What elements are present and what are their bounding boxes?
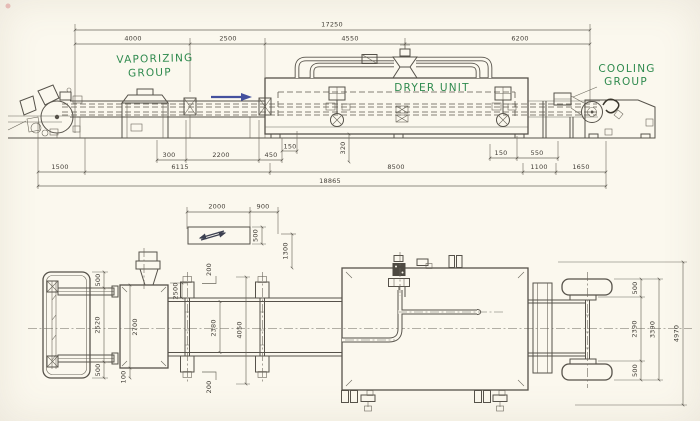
- dim-300: 300: [162, 151, 175, 159]
- scan-smudge: [6, 4, 11, 9]
- roller-2: [256, 272, 270, 382]
- dryer-unit-plan: [342, 252, 529, 411]
- cooling-group-label-line2: GROUP: [604, 76, 648, 88]
- dim-2200: 2200: [212, 151, 229, 159]
- plan-view: 2000 900 500 1300: [28, 203, 692, 412]
- dim-150-right: 150: [494, 149, 507, 157]
- roller-1: [181, 272, 195, 382]
- dim-6115: 6115: [171, 163, 188, 171]
- dim-500-unwinder-top: 500: [94, 273, 102, 286]
- dim-450: 450: [264, 151, 277, 159]
- dim-900: 900: [256, 203, 269, 211]
- unwinder-side: [20, 85, 82, 138]
- dim-4970: 4970: [673, 325, 681, 342]
- side-view-bottom-dimensions: 300 2200 450 150 320 150 550 1500 6115 8…: [38, 120, 606, 189]
- dim-100: 100: [120, 370, 128, 383]
- web-lines: [62, 104, 597, 115]
- unwinder-plan: 500 2520 500: [43, 272, 118, 378]
- plan-top-dimensions: 2000 900 500 1300: [187, 203, 296, 269]
- drawing-canvas: 17250 4000 2500 4550 6200: [0, 0, 700, 421]
- dim-320: 320: [339, 141, 347, 154]
- dim-150-left: 150: [283, 143, 296, 151]
- dim-4550: 4550: [341, 35, 358, 43]
- cooling-group-side: [528, 87, 600, 138]
- dim-1500: 1500: [51, 163, 68, 171]
- dim-200-bottom: 200: [205, 380, 213, 393]
- dim-2520: 2520: [94, 316, 102, 333]
- vaporizing-group-label-line2: GROUP: [128, 66, 172, 79]
- vaporizing-group-side: [122, 89, 168, 138]
- flow-direction-arrow-icon: [211, 93, 252, 101]
- dim-500-rewinder-top: 500: [631, 281, 639, 294]
- dim-1100: 1100: [530, 163, 547, 171]
- dim-4000: 4000: [124, 35, 141, 43]
- dim-2700: 2700: [131, 318, 139, 335]
- dim-2500: 2500: [219, 35, 236, 43]
- dim-2500-plan: 2500: [172, 282, 180, 299]
- dim-500-unwinder-bottom: 500: [94, 363, 102, 376]
- vaporizing-group-plan: 2700 100 2500: [120, 248, 189, 384]
- exhaust-piping: [297, 42, 490, 78]
- dim-6200: 6200: [511, 35, 528, 43]
- dim-550: 550: [530, 149, 543, 157]
- dim-2380: 2380: [210, 319, 218, 336]
- dim-4050: 4050: [236, 321, 244, 338]
- dim-1300: 1300: [282, 242, 290, 259]
- dryer-unit-label: DRYER UNIT: [394, 82, 469, 94]
- dim-500-symbol: 500: [252, 229, 260, 242]
- cooling-group-label-line1: COOLING: [598, 63, 655, 75]
- dim-200-top: 200: [205, 263, 213, 276]
- dim-2000: 2000: [208, 203, 225, 211]
- dim-1650: 1650: [572, 163, 589, 171]
- vaporizing-group-label-line1: VAPORIZING: [116, 52, 193, 66]
- scanned-technical-drawing: 17250 4000 2500 4550 6200: [0, 0, 700, 421]
- dim-2390: 2390: [631, 320, 639, 337]
- plan-right-dimensions: 500 2390 500 3390 4970: [558, 262, 687, 405]
- dim-3390: 3390: [649, 321, 657, 338]
- direction-symbol-box: [188, 227, 250, 244]
- burner-flange: [393, 263, 406, 276]
- mid-fitting: [396, 106, 408, 122]
- pen-squiggle: [603, 99, 619, 113]
- dim-8500: 8500: [387, 163, 404, 171]
- rewinder-plan: [562, 272, 612, 388]
- dim-18865: 18865: [319, 177, 341, 185]
- dim-500-rewinder-bottom: 500: [631, 364, 639, 377]
- dim-overall-17250: 17250: [321, 21, 343, 29]
- cooling-label-pointer: [573, 87, 597, 97]
- side-view-machine: [8, 42, 655, 138]
